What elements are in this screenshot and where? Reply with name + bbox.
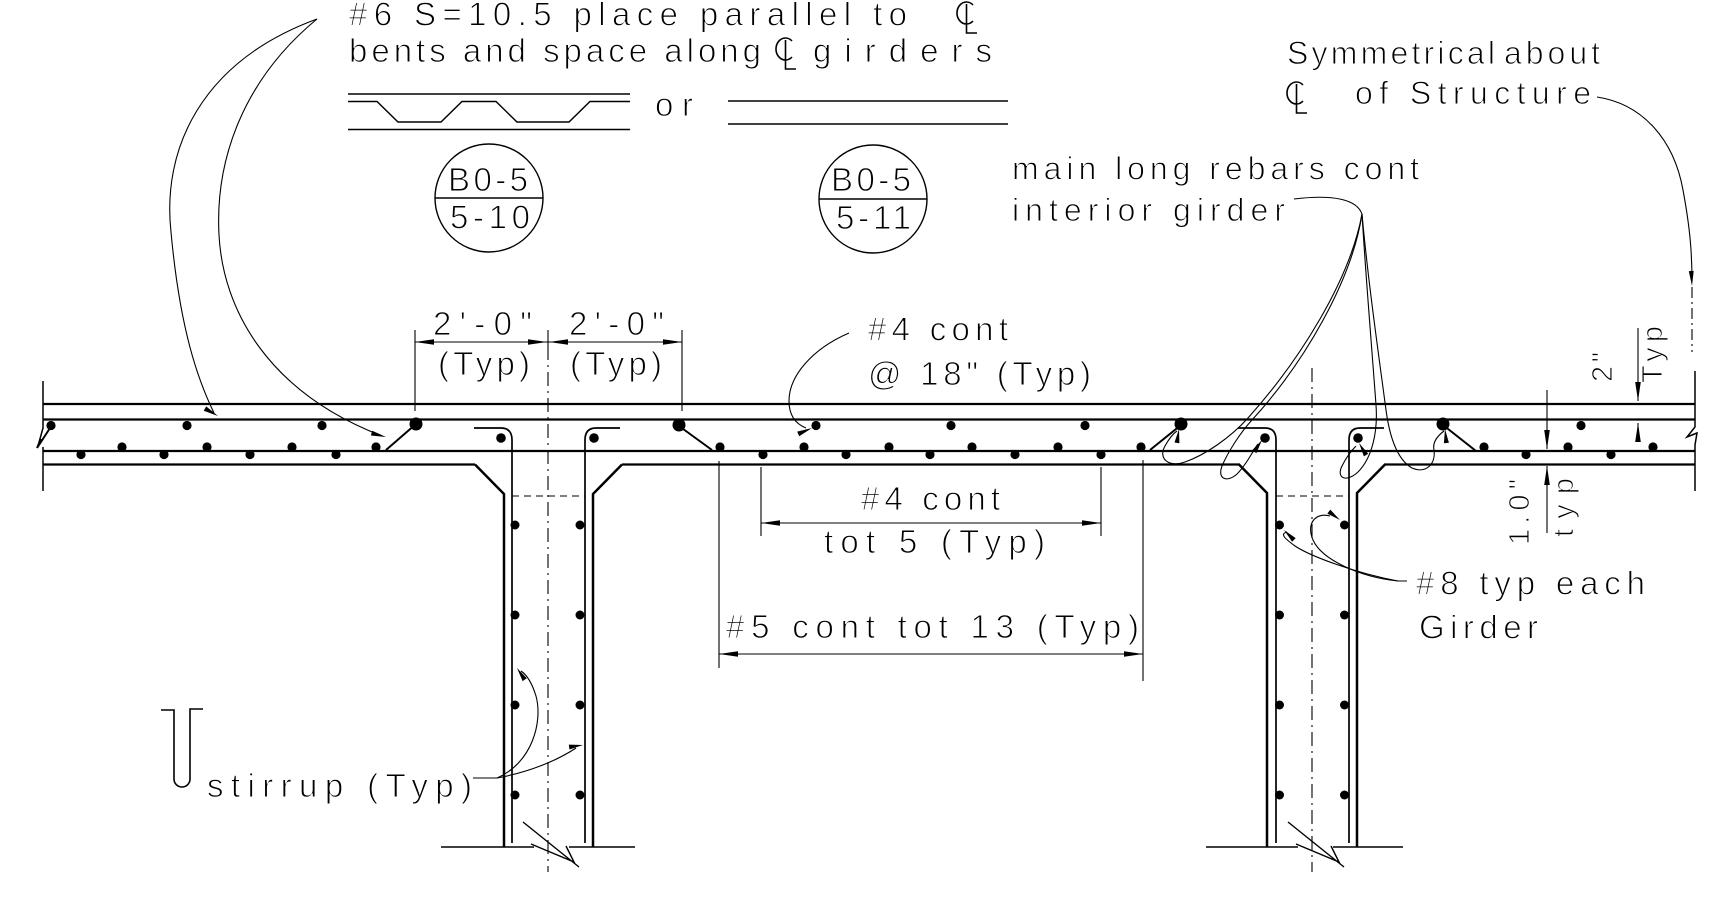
svg-text:5-10: 5-10 xyxy=(450,199,530,236)
svg-text:bents and space along: bents and space along xyxy=(349,32,761,69)
svg-text:#8 typ each: #8 typ each xyxy=(1416,565,1645,602)
svg-text:5-11: 5-11 xyxy=(836,199,911,236)
svg-text:Girder: Girder xyxy=(1419,609,1538,646)
svg-text:Typ: Typ xyxy=(1637,326,1669,383)
svg-text:2": 2" xyxy=(1587,352,1619,382)
svg-text:interior girder: interior girder xyxy=(1012,192,1285,228)
svg-text:main long rebars cont: main long rebars cont xyxy=(1012,151,1419,187)
svg-text:about: about xyxy=(1504,35,1600,71)
svg-text:B0-5: B0-5 xyxy=(831,161,911,198)
svg-text:B0-5: B0-5 xyxy=(448,161,528,198)
svg-text:#6 S=10.5 place parallel to: #6 S=10.5 place parallel to xyxy=(349,0,907,33)
